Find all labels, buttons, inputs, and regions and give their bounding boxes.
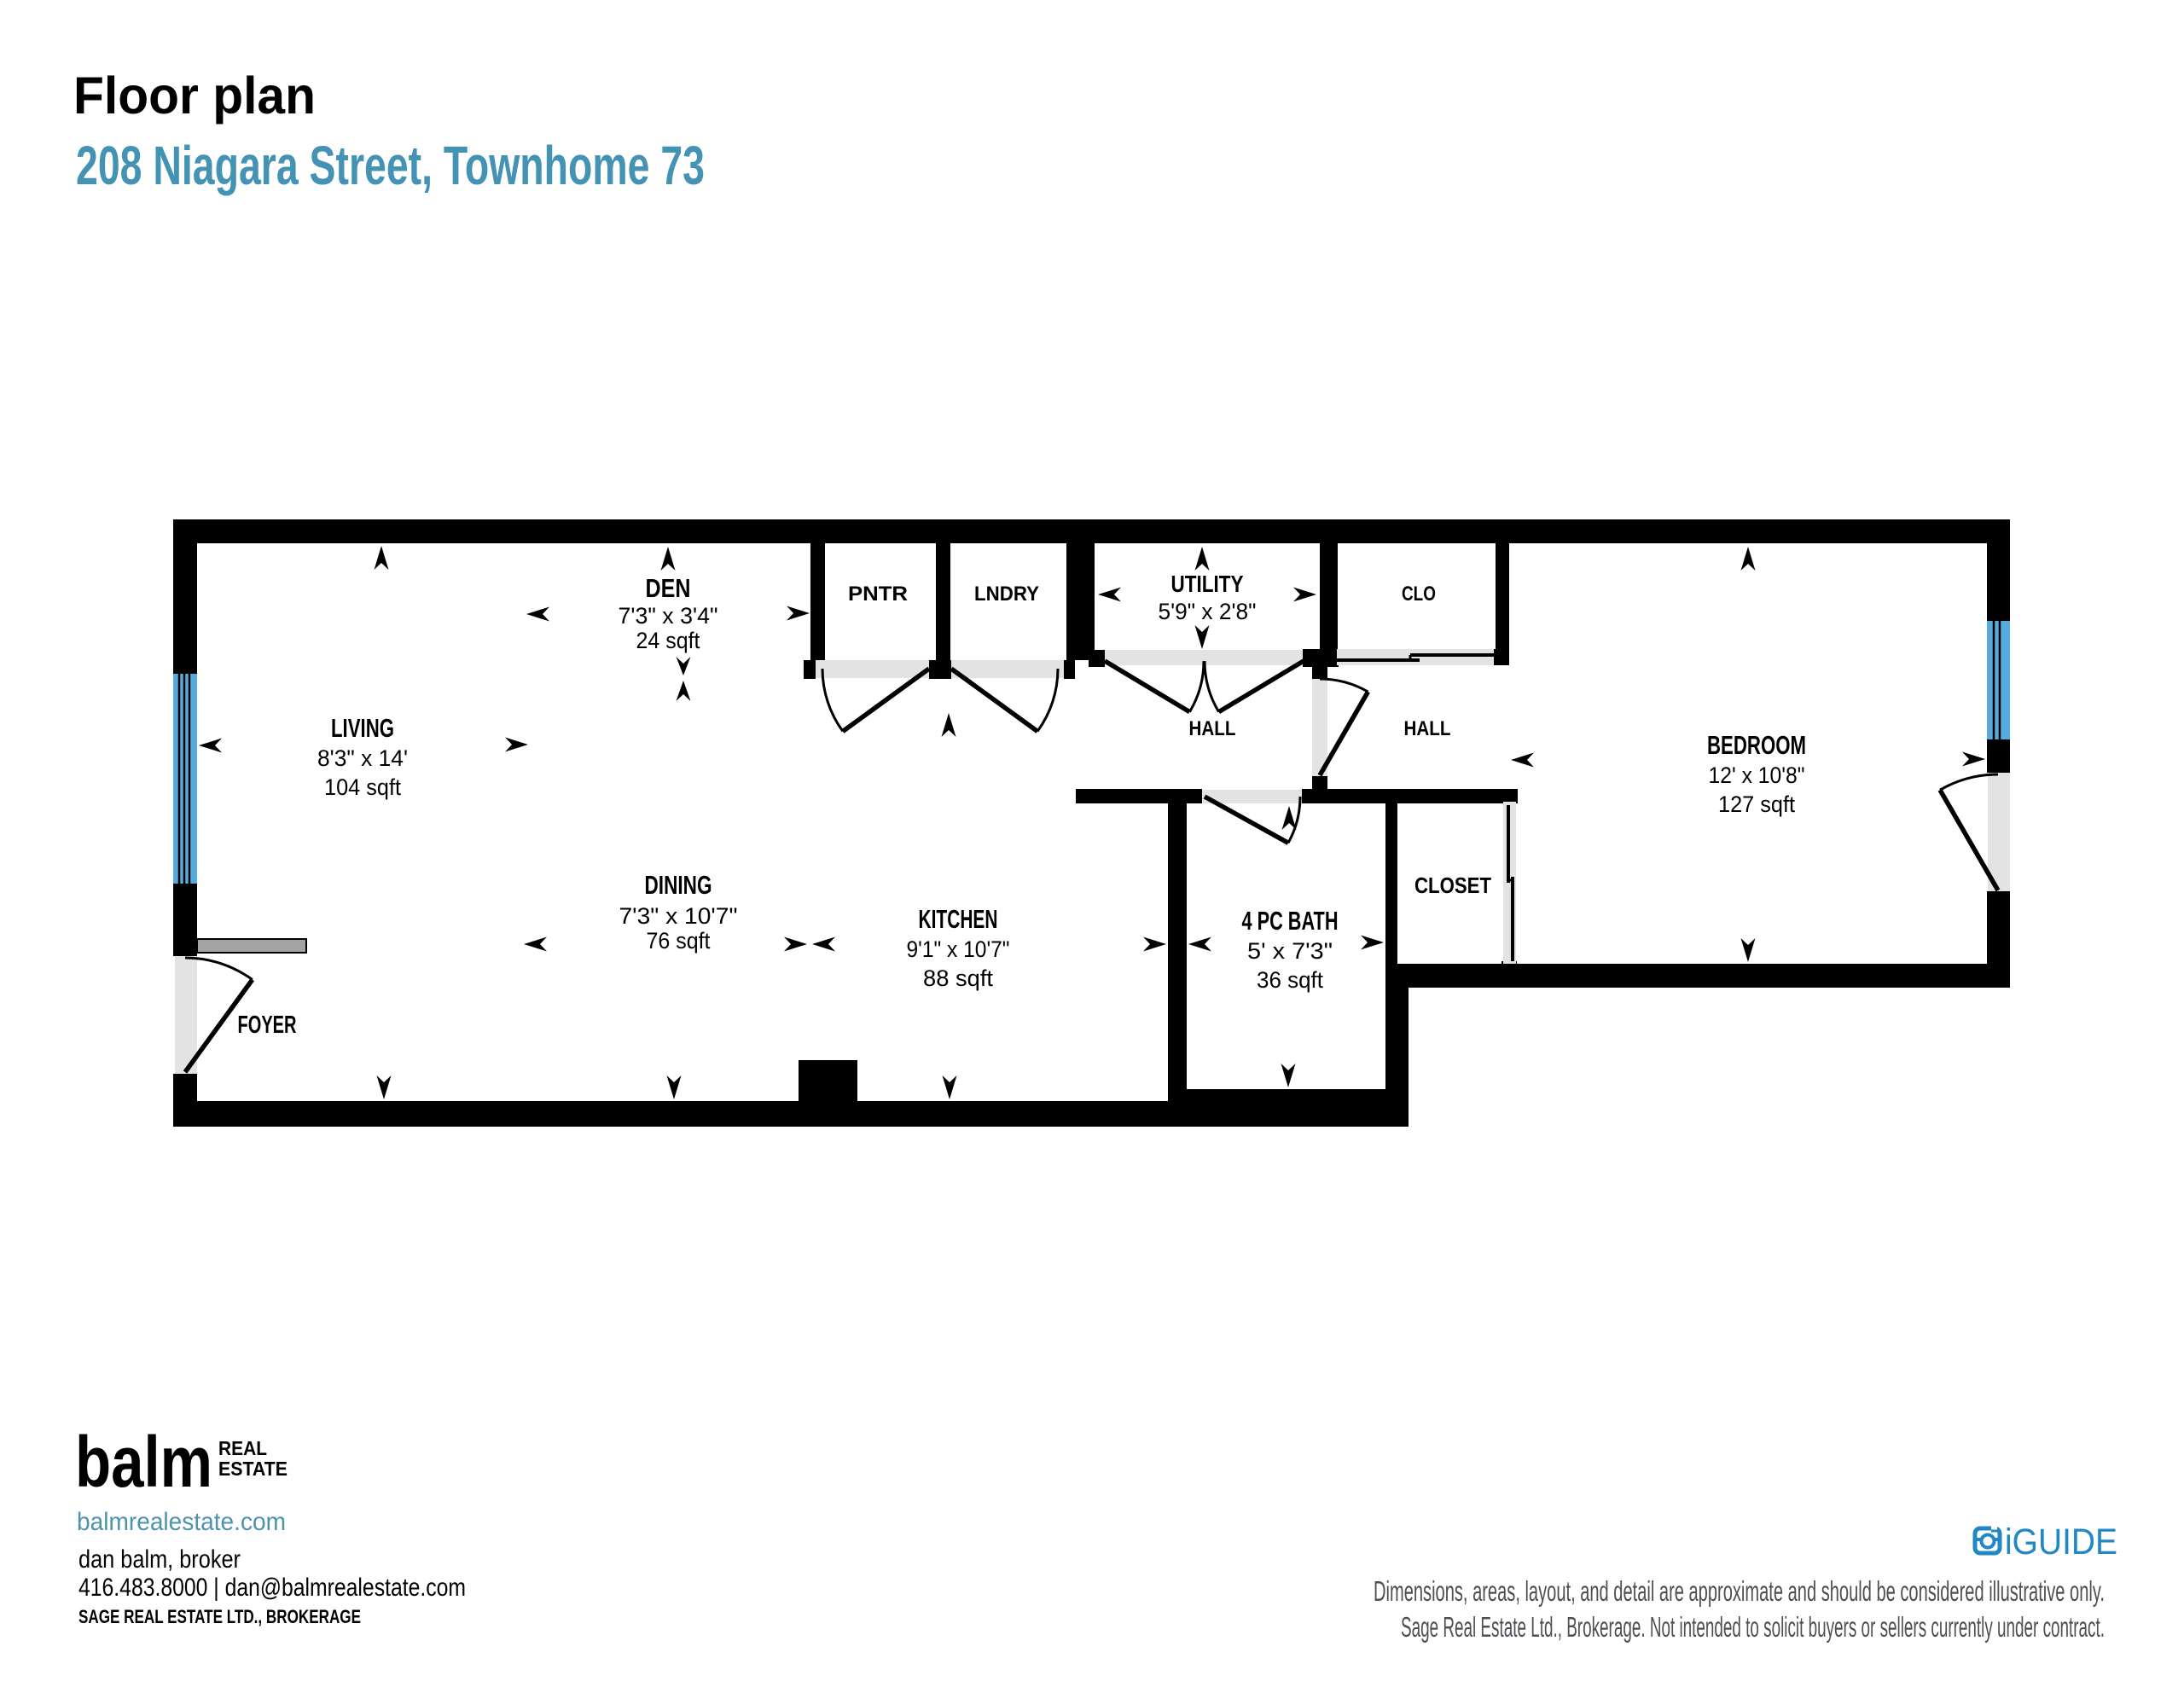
svg-text:UTILITY: UTILITY <box>1171 571 1244 597</box>
svg-text:CLOSET: CLOSET <box>1414 872 1491 898</box>
svg-text:7'3" x 10'7": 7'3" x 10'7" <box>619 903 738 929</box>
svg-text:LNDRY: LNDRY <box>974 583 1039 606</box>
svg-text:Floor plan: Floor plan <box>73 67 316 125</box>
svg-text:SAGE REAL ESTATE LTD., BROKERA: SAGE REAL ESTATE LTD., BROKERAGE <box>78 1606 361 1627</box>
svg-text:127 sqft: 127 sqft <box>1718 791 1795 817</box>
svg-text:208 Niagara Street, Townhome 7: 208 Niagara Street, Townhome 73 <box>76 135 705 196</box>
svg-text:KITCHEN: KITCHEN <box>919 904 998 934</box>
svg-text:CLO: CLO <box>1402 583 1436 606</box>
svg-text:BEDROOM: BEDROOM <box>1707 730 1806 760</box>
svg-text:24 sqft: 24 sqft <box>636 628 700 653</box>
svg-text:DEN: DEN <box>646 573 691 603</box>
svg-text:7'3" x 3'4": 7'3" x 3'4" <box>619 603 718 629</box>
svg-text:iGUIDE: iGUIDE <box>2005 1522 2117 1562</box>
svg-text:REAL: REAL <box>218 1437 267 1459</box>
svg-text:5'9" x 2'8": 5'9" x 2'8" <box>1159 599 1257 624</box>
svg-text:76 sqft: 76 sqft <box>647 928 711 954</box>
svg-text:104 sqft: 104 sqft <box>324 774 401 800</box>
svg-text:416.483.8000 | dan@balmrealest: 416.483.8000 | dan@balmrealestate.com <box>78 1574 466 1602</box>
svg-text:Dimensions, areas, layout, and: Dimensions, areas, layout, and detail ar… <box>1374 1575 2105 1607</box>
svg-text:12' x 10'8": 12' x 10'8" <box>1709 762 1805 788</box>
svg-text:HALL: HALL <box>1189 717 1236 740</box>
svg-text:dan balm, broker: dan balm, broker <box>78 1545 241 1574</box>
svg-text:8'3" x 14': 8'3" x 14' <box>317 745 408 771</box>
svg-text:36 sqft: 36 sqft <box>1257 967 1323 993</box>
svg-text:ESTATE: ESTATE <box>218 1458 288 1480</box>
svg-text:FOYER: FOYER <box>238 1012 297 1039</box>
svg-text:9'1" x 10'7": 9'1" x 10'7" <box>907 936 1010 962</box>
svg-text:HALL: HALL <box>1404 717 1451 740</box>
svg-text:PNTR: PNTR <box>848 583 908 606</box>
svg-text:balm: balm <box>75 1422 212 1502</box>
svg-text:balmrealestate.com: balmrealestate.com <box>77 1508 286 1536</box>
svg-text:4 PC BATH: 4 PC BATH <box>1242 906 1339 936</box>
svg-text:LIVING: LIVING <box>331 713 394 743</box>
svg-text:88 sqft: 88 sqft <box>923 965 993 991</box>
svg-text:DINING: DINING <box>645 870 712 900</box>
svg-text:Sage Real Estate Ltd., Brokera: Sage Real Estate Ltd., Brokerage. Not in… <box>1401 1611 2105 1643</box>
svg-text:5' x 7'3": 5' x 7'3" <box>1247 938 1333 964</box>
